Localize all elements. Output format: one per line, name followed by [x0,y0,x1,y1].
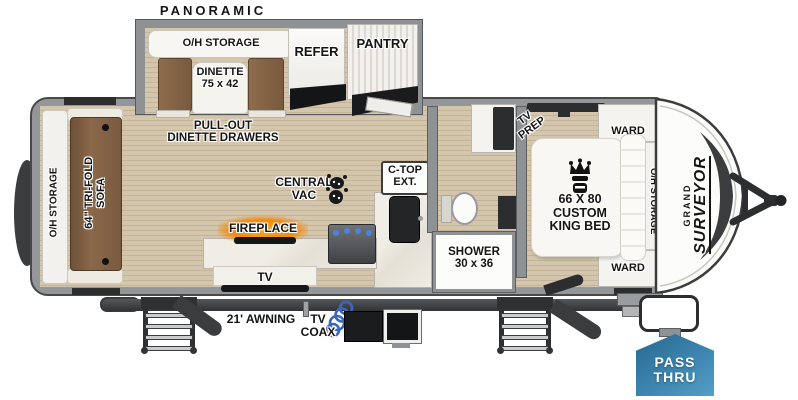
dinette-bench-left [158,58,192,112]
shower: SHOWER 30 x 36 [433,232,515,292]
bedroom-tv-prep-bracket [558,112,570,117]
rear-bottom-window [72,288,120,295]
fireplace-insert [234,237,296,244]
step-tread [501,324,549,329]
step-tread [501,335,549,340]
hitch-frame-outline [639,295,699,332]
dinette-table: DINETTE 75 x 42 [192,62,248,114]
rear-oh-storage-label: O/H STORAGE [50,142,61,262]
bath-linen-cabinet [498,196,516,229]
tv-coax-label: TVCOAX [296,313,340,339]
step-tread [145,335,193,340]
step-wheel [190,347,197,354]
sink-faucet [418,216,423,221]
living-tv-label: TV [243,271,287,284]
wall-kitchen-bath [427,106,438,233]
brand-grand: GRAND [683,184,693,227]
brand-surveyor: SURVEYOR [692,156,711,254]
bed-label: 66 X 80CUSTOMKING BED [538,193,622,234]
cooktop-burner [366,230,372,236]
pullout-drawers-label: PULL-OUTDINETTE DRAWERS [150,120,296,145]
crown-icon [567,158,593,194]
step-platform [497,297,553,309]
pantry-label: PANTRY [357,36,409,51]
refer-label: REFER [294,44,338,59]
slide-oh-storage-cabinet: O/H STORAGE [148,30,294,58]
step-tread [145,324,193,329]
cooktop-burner [355,228,361,234]
ctop-ext-label2: EXT. [383,177,427,189]
central-vac-icon [325,171,349,205]
dinette-bench-edge-left [156,110,190,118]
entry-steps-bedroom [497,297,553,354]
sofa-label: 64" TRI-FOLDSOFA [84,118,108,268]
dinette-bench-right [248,58,284,112]
step-wheel [497,347,504,354]
step-tread [145,346,193,351]
toilet [451,192,478,225]
fireplace-label: FIREPLACE [221,222,305,235]
dinette-size-label: 75 x 42 [193,79,247,91]
cooktop-burner [344,228,350,234]
shower-label: SHOWER [436,246,512,258]
living-tv [221,285,309,292]
rear-top-window [64,97,116,105]
ctop-ext-callout: C-TOP EXT. [381,161,429,195]
dinette-bench-edge-right [248,110,286,118]
floorplan: PANORAMIC WINDOW O/H STORAGE DINETTE 75 … [0,0,798,400]
utility-hatch [384,310,421,343]
shower-size-label: 30 x 36 [436,258,512,270]
utility-hatch-tab [392,343,410,348]
pass-thru-label: PASSTHRU [654,355,697,386]
pass-thru-badge: PASSTHRU [636,334,714,396]
cooktop-burner [333,230,339,236]
kitchen-sink [389,196,420,243]
awning-label: 21' AWNING [226,313,296,326]
step-tread [501,313,549,318]
utility-compartment [344,311,383,342]
step-rail [546,297,551,349]
brand-logo: GRAND SURVEYOR [637,140,757,270]
step-tread [501,346,549,351]
step-wheel [546,347,553,354]
step-rail [143,297,148,349]
slide-oh-storage-label: O/H STORAGE [183,38,260,50]
step-rail [499,297,504,349]
step-wheel [141,347,148,354]
